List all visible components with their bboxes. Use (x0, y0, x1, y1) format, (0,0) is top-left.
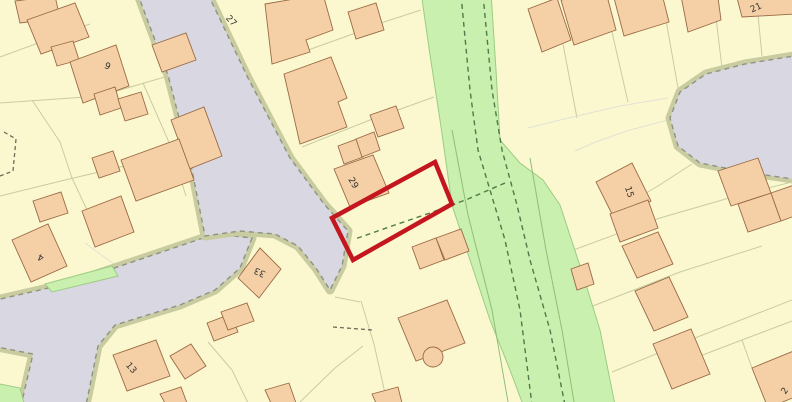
site-plan-map[interactable]: 276293341315212 (0, 0, 792, 402)
building-bay (423, 347, 443, 367)
map-canvas: 276293341315212 (0, 0, 792, 402)
building (736, 0, 792, 17)
